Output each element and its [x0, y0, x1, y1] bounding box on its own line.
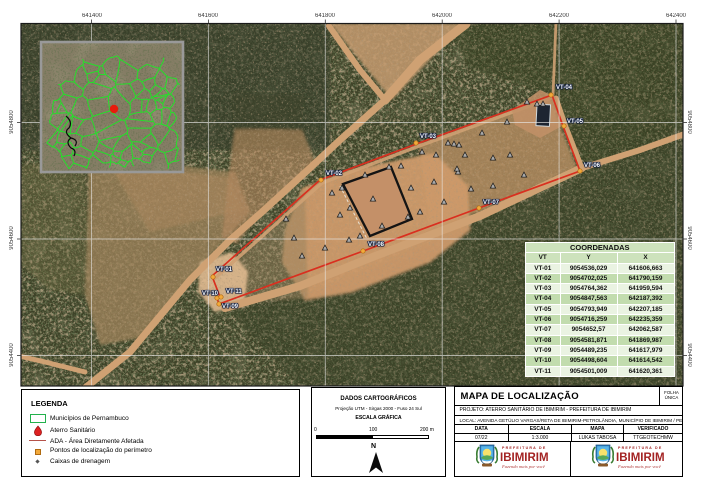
svg-text:IBIMIRIM: IBIMIRIM — [500, 452, 549, 464]
svg-text:Fazendo mais por você: Fazendo mais por você — [617, 464, 662, 469]
svg-text:PREFEITURA DE: PREFEITURA DE — [502, 446, 546, 450]
svg-text:IBIMIRIM: IBIMIRIM — [616, 452, 665, 464]
svg-text:PREFEITURA DE: PREFEITURA DE — [618, 446, 662, 450]
svg-text:Fazendo mais por você: Fazendo mais por você — [501, 464, 546, 469]
